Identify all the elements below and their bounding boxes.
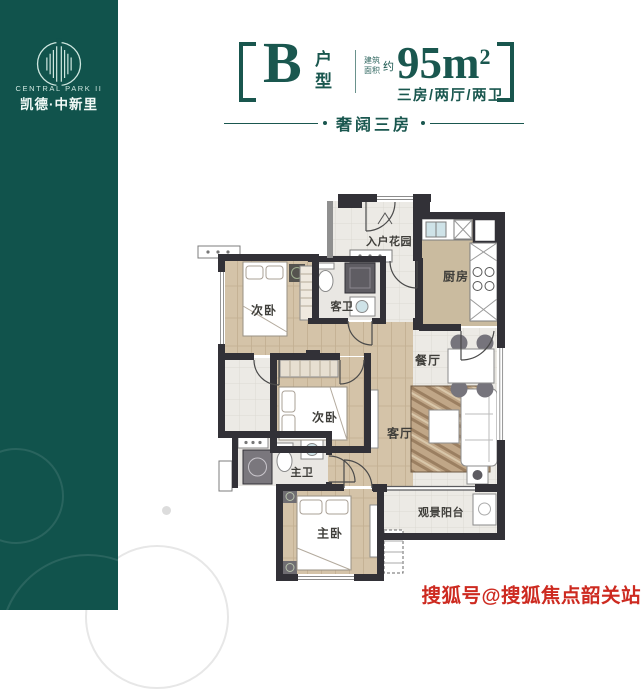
fridge-icon	[474, 219, 496, 242]
pillow-icon	[266, 266, 283, 279]
toilet-icon	[318, 271, 333, 292]
room-label-bedroom-a: 次卧	[251, 302, 277, 319]
wardrobe-icon	[280, 360, 338, 377]
ac-platform	[219, 461, 232, 491]
hall-floor	[384, 258, 417, 324]
room-label-guest-bath: 客卫	[331, 298, 354, 314]
coffee-table-icon	[429, 410, 459, 443]
floorplan-drawing	[0, 0, 643, 610]
room-label-living: 客厅	[387, 425, 413, 442]
room-label-master-bath: 主卫	[291, 464, 314, 480]
entry-garden-floor	[330, 201, 415, 258]
corridor-wood-a	[312, 322, 413, 356]
dining-table-icon	[448, 349, 494, 383]
room-label-balcony: 观景阳台	[418, 504, 464, 520]
corridor-tile	[222, 358, 272, 433]
room-label-bedroom-b: 次卧	[312, 409, 338, 426]
plant-icon	[473, 470, 483, 480]
watermark: 搜狐号@搜狐焦点韶关站	[421, 579, 641, 608]
room-label-master-bedroom: 主卧	[317, 525, 343, 542]
washing-machine-icon	[243, 450, 272, 484]
balcony-items	[473, 494, 496, 525]
tv-board-icon	[370, 505, 378, 557]
nightstand-icon	[283, 561, 297, 574]
room-label-kitchen: 厨房	[443, 268, 469, 285]
pillow-icon	[326, 500, 348, 514]
balcony-slider-window	[387, 487, 475, 491]
pillow-icon	[282, 391, 295, 412]
poster-canvas: CENTRAL PARK II 凯德·中新里 B 户型 建筑面积 约 95m2 …	[0, 0, 643, 610]
room-label-entry-garden: 入户花园	[366, 233, 412, 249]
bedroom-b-furniture	[279, 360, 347, 440]
toilet-tank	[317, 263, 334, 269]
balcony-cabinet-icon	[473, 494, 496, 525]
sofa-icon	[461, 389, 497, 466]
pillow-icon	[300, 500, 322, 514]
nightstand-icon	[283, 490, 297, 503]
pillow-icon	[246, 266, 263, 279]
room-label-dining: 餐厅	[415, 352, 441, 369]
